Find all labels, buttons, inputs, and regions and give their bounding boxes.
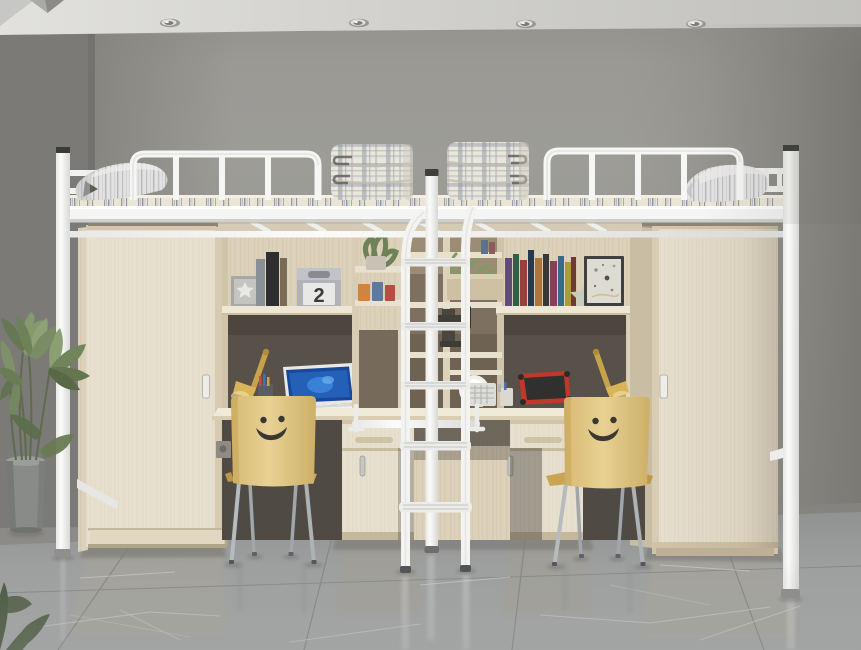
- svg-text:2: 2: [313, 285, 324, 307]
